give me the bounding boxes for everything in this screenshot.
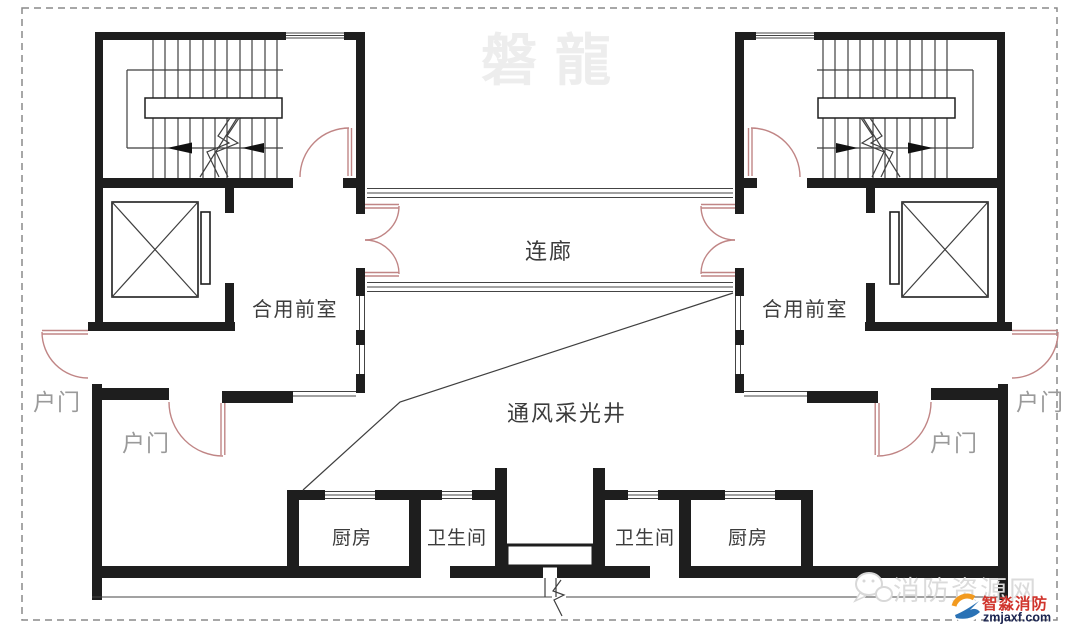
floor-plan: 连廊 合用前室 合用前室 通风采光井 户门 户门 户门 户门 厨房 卫生间 卫生… — [0, 0, 1080, 639]
vent-shaft-label: 通风采光井 — [507, 401, 627, 426]
inner-entry-door — [169, 402, 225, 456]
corridor-double-door — [365, 205, 399, 277]
stairwell-door — [300, 128, 352, 177]
front-room-walls — [293, 196, 365, 396]
stair-direction-arrow — [167, 143, 192, 154]
outer-entry-door — [42, 331, 88, 379]
logo-domain-text: zmjaxf.com — [983, 611, 1051, 625]
elevator-door-panel — [201, 212, 210, 284]
kitchen-label-left: 厨房 — [332, 527, 372, 549]
entry-door-label-inner-right: 户门 — [930, 430, 978, 456]
stair-landing — [145, 98, 282, 118]
brand-watermark: 磐龍 — [481, 29, 629, 92]
stair-flight — [127, 40, 283, 178]
entry-door-label-inner-left: 户门 — [122, 430, 170, 456]
front-room-label-right: 合用前室 — [762, 298, 848, 321]
entry-door-label-outer-right: 户门 — [1016, 389, 1064, 415]
duct-box — [507, 545, 593, 566]
elevator — [88, 180, 235, 331]
entry-door-label-outer-left: 户门 — [33, 389, 81, 415]
front-room-label-left: 合用前室 — [252, 298, 338, 321]
logo: 智淼消防 zmjaxf.com — [953, 594, 1051, 625]
corridor-label: 连廊 — [525, 239, 573, 264]
vent-shaft-outline — [303, 293, 733, 490]
kitchen-label-right: 厨房 — [728, 527, 768, 549]
bathroom-label-right: 卫生间 — [615, 527, 675, 549]
apartment-walls — [92, 384, 543, 600]
floor-plan-drawing: 连廊 合用前室 合用前室 通风采光井 户门 户门 户门 户门 厨房 卫生间 卫生… — [0, 0, 1080, 639]
stair-direction-arrow — [242, 143, 264, 153]
bathroom-label-left: 卫生间 — [427, 527, 487, 549]
drawing-break-mark — [553, 580, 564, 616]
